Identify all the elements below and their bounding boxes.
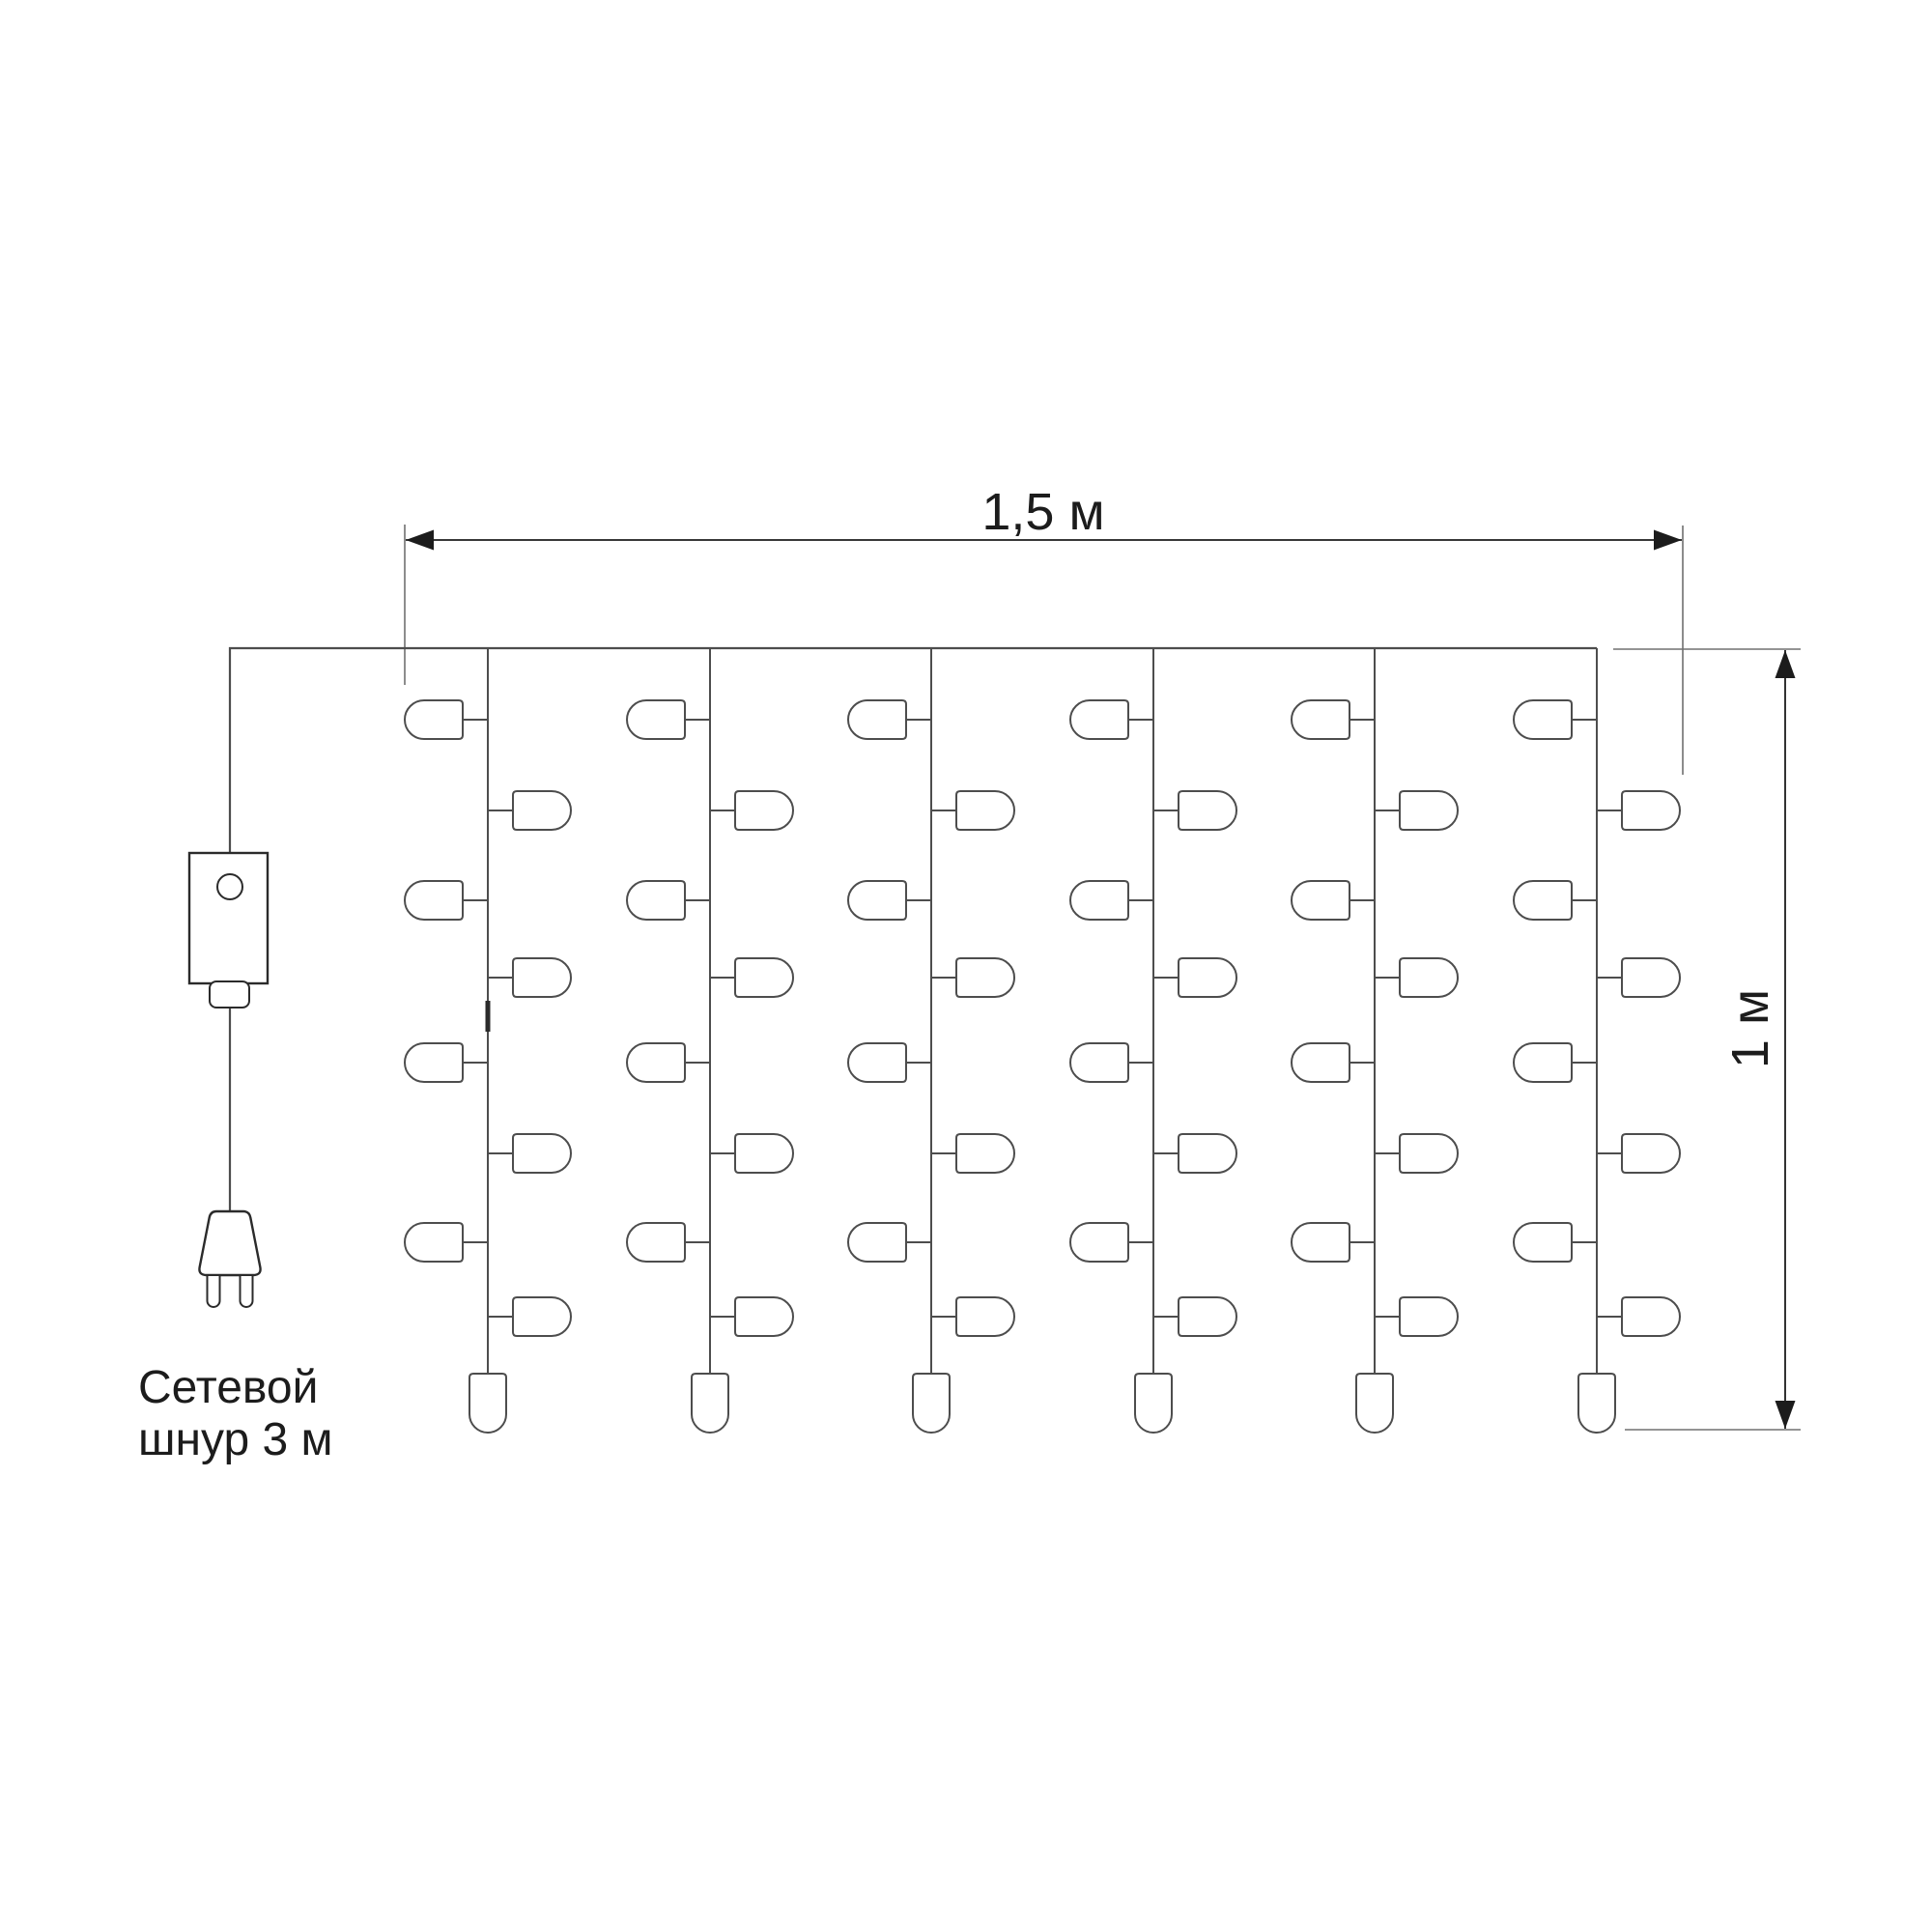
led-bulb-left <box>848 1223 906 1262</box>
led-bulb-right <box>1179 1297 1236 1336</box>
led-bulb-right <box>956 1134 1014 1173</box>
plug-prong-right-icon <box>241 1276 253 1307</box>
led-bulb-left <box>1514 700 1572 739</box>
led-bulb-right <box>1622 1297 1680 1336</box>
led-bulb-left <box>627 1043 685 1082</box>
led-bulb-left <box>627 881 685 920</box>
led-curtain-diagram: 1,5 м 1 м Сетевой шнур 3 м <box>0 0 1932 1932</box>
led-bulb-right <box>1400 958 1458 997</box>
led-bulb-right <box>1179 958 1236 997</box>
led-bulb-right <box>1179 1134 1236 1173</box>
led-bulb-left <box>1292 881 1350 920</box>
led-bulb-left <box>848 1043 906 1082</box>
led-bulb-left <box>848 700 906 739</box>
led-bulb-right <box>735 791 793 830</box>
power-cord-label-line2: шнур 3 м <box>138 1414 333 1465</box>
led-bulb-bottom <box>469 1374 506 1433</box>
led-bulb-right <box>956 1297 1014 1336</box>
led-bulb-left <box>848 881 906 920</box>
led-bulb-left <box>1070 1043 1128 1082</box>
led-bulb-right <box>1622 958 1680 997</box>
led-bulb-right <box>1179 791 1236 830</box>
led-bulb-right <box>1400 1134 1458 1173</box>
led-bulb-bottom <box>1578 1374 1615 1433</box>
led-bulb-left <box>1514 881 1572 920</box>
led-bulb-left <box>1070 700 1128 739</box>
led-bulb-left <box>405 700 463 739</box>
height-dim-label: 1 м <box>1721 989 1779 1068</box>
plug-body-icon <box>199 1211 260 1275</box>
width-dim-label: 1,5 м <box>981 483 1104 541</box>
led-bulb-left <box>405 881 463 920</box>
led-bulb-bottom <box>692 1374 728 1433</box>
led-bulb-right <box>513 1134 571 1173</box>
controller-indicator-circle <box>217 874 242 899</box>
power-cord-label-line1: Сетевой <box>138 1362 318 1413</box>
controller-box <box>189 853 268 983</box>
led-bulb-left <box>627 700 685 739</box>
led-bulb-right <box>956 791 1014 830</box>
led-bulb-left <box>1292 1043 1350 1082</box>
plug-prong-left-icon <box>208 1276 220 1307</box>
led-bulb-bottom <box>1135 1374 1172 1433</box>
led-bulb-right <box>513 958 571 997</box>
led-bulb-right <box>956 958 1014 997</box>
led-bulb-left <box>627 1223 685 1262</box>
led-bulb-left <box>1514 1043 1572 1082</box>
led-bulb-right <box>1400 1297 1458 1336</box>
led-bulb-right <box>735 958 793 997</box>
led-bulb-right <box>513 791 571 830</box>
led-bulb-right <box>1400 791 1458 830</box>
led-bulb-left <box>1292 1223 1350 1262</box>
led-bulb-right <box>735 1134 793 1173</box>
led-bulb-bottom <box>913 1374 950 1433</box>
led-bulb-right <box>1622 791 1680 830</box>
led-bulb-left <box>1292 700 1350 739</box>
controller-connector-tab <box>210 981 249 1008</box>
led-bulb-left <box>405 1223 463 1262</box>
led-bulb-left <box>405 1043 463 1082</box>
led-bulb-left <box>1070 1223 1128 1262</box>
led-bulb-right <box>735 1297 793 1336</box>
led-bulb-right <box>1622 1134 1680 1173</box>
led-bulb-left <box>1514 1223 1572 1262</box>
led-bulb-left <box>1070 881 1128 920</box>
led-bulb-right <box>513 1297 571 1336</box>
led-bulb-bottom <box>1356 1374 1393 1433</box>
